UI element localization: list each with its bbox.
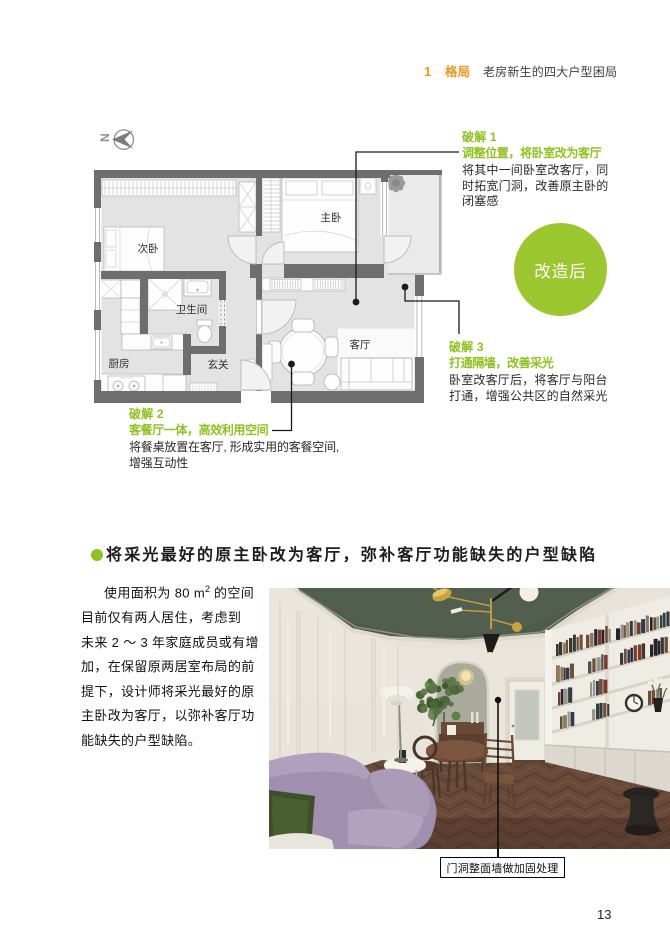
svg-text:玄关: 玄关 [208,358,229,371]
svg-text:次卧: 次卧 [138,242,159,255]
svg-text:厨房: 厨房 [109,357,130,370]
svg-text:N: N [98,133,112,142]
svg-text:卫生间: 卫生间 [176,303,208,316]
svg-text:主卧: 主卧 [321,211,342,224]
svg-text:客厅: 客厅 [350,338,371,351]
